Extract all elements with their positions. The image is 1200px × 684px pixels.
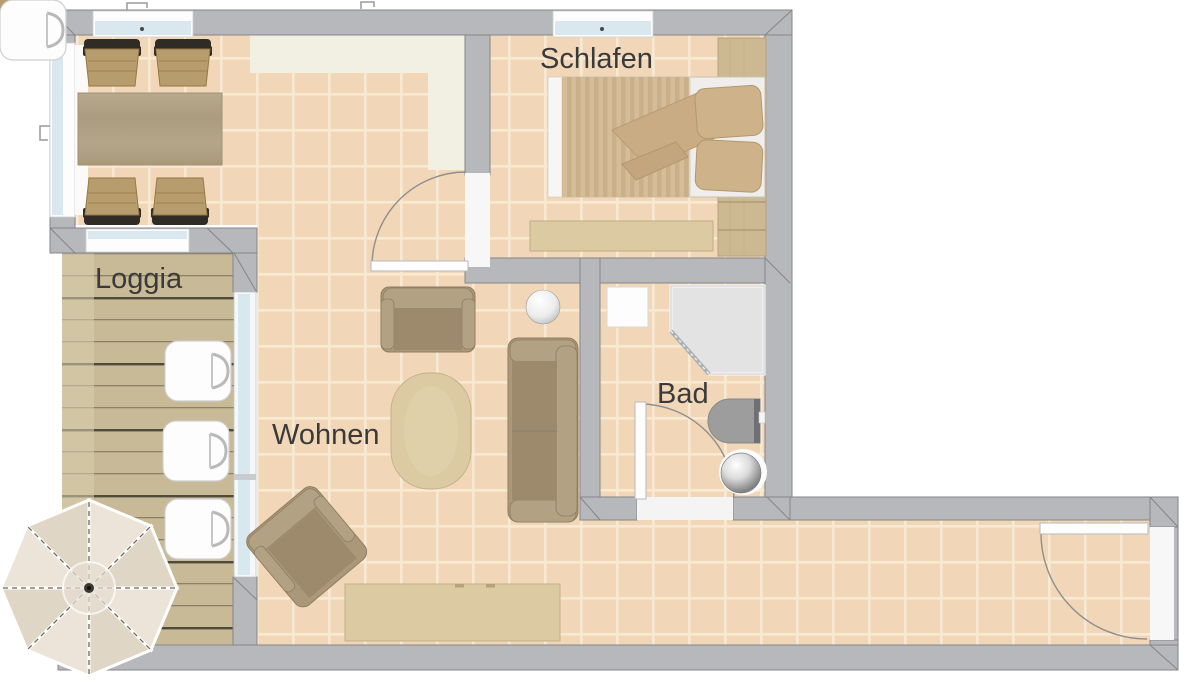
wall-bathroom-west (580, 258, 600, 520)
hall-floor (580, 520, 1152, 645)
wall-bedroom-west (465, 35, 490, 175)
room-label-bedroom: Schlafen (540, 43, 653, 75)
entrance-door-opening (1150, 527, 1174, 640)
deck-chair (165, 341, 231, 401)
pillow (695, 139, 764, 192)
dining-table (78, 93, 222, 165)
window-handle (140, 27, 144, 31)
bathroom-door-leaf (635, 402, 646, 499)
sphere-lamp (526, 290, 560, 324)
double-bed (548, 77, 765, 197)
window-bedroom-north (553, 11, 653, 37)
wall-east (765, 35, 792, 520)
bathroom-door-opening (637, 497, 733, 520)
lowboard-handle (455, 584, 464, 588)
window-loggia (86, 229, 189, 252)
toilet-flush-plate (759, 412, 765, 423)
bedroom-door-leaf (371, 261, 468, 271)
dining-chair (151, 178, 209, 225)
lowboard-handle (486, 584, 495, 588)
entrance-door-leaf (1040, 523, 1148, 534)
wall-partition-bottom-stub (233, 577, 257, 647)
loveseat (381, 287, 475, 352)
glass-partition-mullion (234, 474, 256, 480)
bath-cabinet (607, 287, 648, 327)
deck-chair (163, 421, 229, 481)
room-label-loggia: Loggia (95, 263, 183, 295)
floor-plan-canvas: Schlafen Loggia Wohnen Bad (0, 0, 1200, 684)
dining-chair (154, 39, 212, 86)
coffee-table-grain (404, 386, 458, 476)
wall-tick-mark (361, 2, 374, 9)
wall-hall-north (790, 497, 1155, 520)
window-vent-mark (40, 126, 50, 140)
tv-lowboard (345, 584, 560, 641)
window-vent-mark (127, 3, 147, 10)
sofa (508, 338, 578, 522)
wall-south (58, 645, 1178, 670)
window-handle (600, 27, 604, 31)
pillow (694, 85, 763, 139)
bedroom-sideboard (530, 221, 713, 251)
washbasin (719, 449, 767, 495)
bed-foot-fold (548, 77, 562, 197)
parasol (1, 500, 177, 676)
dining-chair (83, 39, 141, 86)
room-label-living: Wohnen (272, 419, 380, 451)
wall-bathroom-south-right (733, 497, 792, 520)
toilet (708, 399, 765, 443)
window-dining-north (93, 3, 193, 37)
deck-chair (165, 499, 231, 559)
floor-plan: Schlafen Loggia Wohnen Bad (0, 0, 1200, 684)
dining-chair (83, 178, 141, 225)
wall-bedroom-south (465, 258, 790, 283)
room-label-bathroom: Bad (657, 378, 709, 410)
wall-bathroom-south-left (580, 497, 637, 520)
bedroom-door-opening (465, 173, 490, 267)
